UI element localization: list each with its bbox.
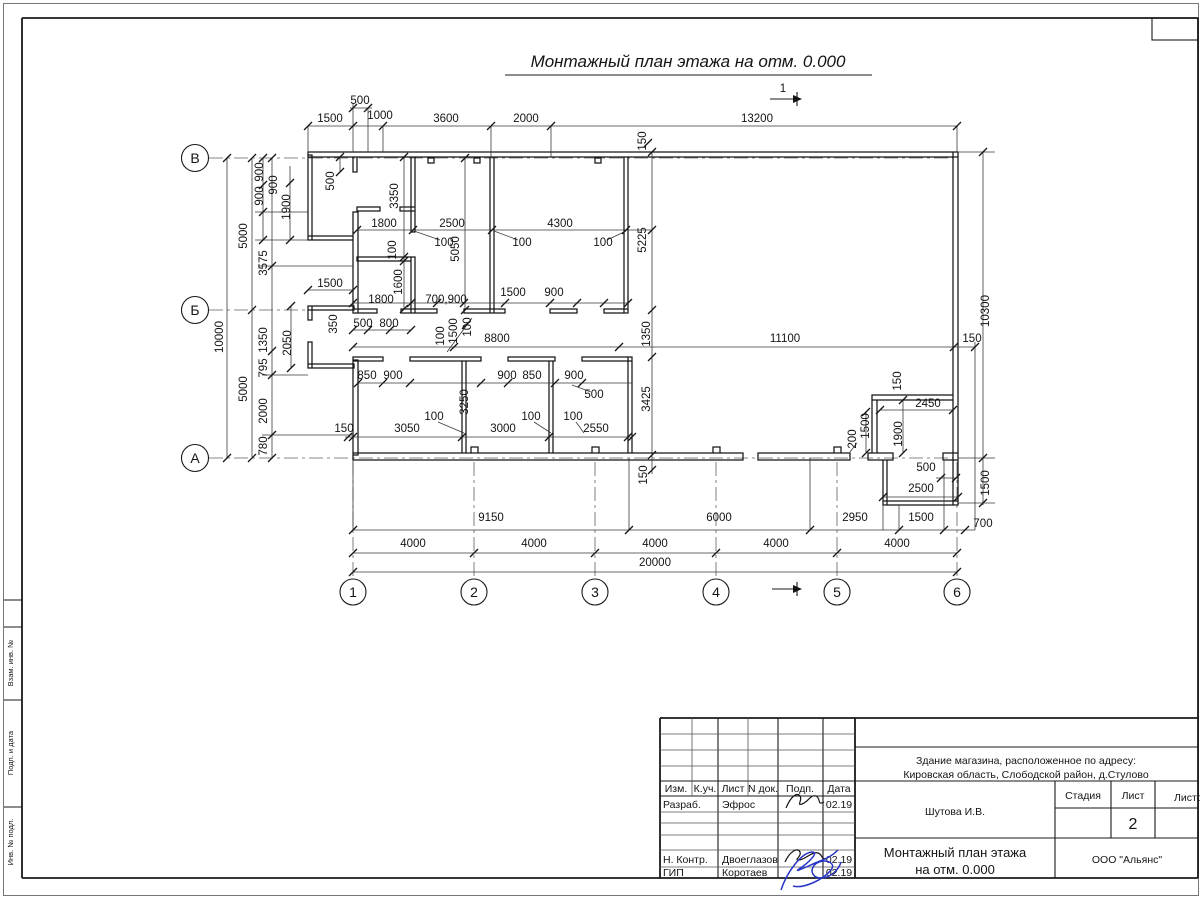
dim-label: 500 bbox=[350, 95, 369, 107]
title-block: Изм. К.уч. Лист N док. Подп. Дата Разраб… bbox=[660, 718, 1200, 890]
dim-label: 500 bbox=[584, 389, 603, 401]
format-box bbox=[1152, 18, 1198, 40]
dim-label: 900 bbox=[564, 370, 583, 382]
tb-doc-title-line1: Монтажный план этажа bbox=[884, 845, 1027, 860]
tb-col-header: N док. bbox=[748, 783, 778, 795]
tb-role: ГИП bbox=[663, 867, 684, 879]
dim-label: 11100 bbox=[770, 333, 800, 345]
tb-doc-title-line2: на отм. 0.000 bbox=[915, 862, 995, 877]
dim-label: 1800 bbox=[371, 218, 397, 230]
dim-label: 1500 bbox=[908, 512, 934, 524]
dim-label: 100 bbox=[512, 237, 531, 249]
dim-label: 3250 bbox=[459, 389, 471, 415]
dim-label: 500 bbox=[353, 318, 372, 330]
dim-label: 1350 bbox=[641, 321, 653, 347]
dimension-labels: 500 1500 1000 3600 2000 13200 150 900 90… bbox=[214, 95, 993, 569]
dim-label: 900 bbox=[544, 287, 563, 299]
dim-label: 5225 bbox=[637, 227, 649, 253]
dim-label: 100 bbox=[424, 411, 443, 423]
dim-label: 3350 bbox=[389, 183, 401, 209]
dim-label: 1500 bbox=[980, 470, 992, 496]
tb-date: 02.19 bbox=[826, 799, 852, 811]
dim-label: 1500 bbox=[317, 113, 343, 125]
dim-label: 3050 bbox=[394, 423, 420, 435]
section-mark-label: 1 bbox=[780, 83, 786, 95]
dim-label: 4000 bbox=[884, 538, 910, 550]
tb-name: Двоеглазов bbox=[722, 854, 778, 866]
dim-label: 2550 bbox=[583, 423, 609, 435]
dim-label: 900 bbox=[254, 186, 266, 205]
dim-label: 13200 bbox=[741, 113, 773, 125]
dim-label: 1500 bbox=[860, 413, 872, 439]
axis-col-label: 2 bbox=[470, 584, 478, 600]
dim-label: 100 bbox=[387, 240, 399, 259]
dim-label: 9150 bbox=[478, 512, 504, 524]
dim-label: 2050 bbox=[282, 330, 294, 356]
dim-label: 700 bbox=[973, 518, 992, 530]
tb-sheet-number: 2 bbox=[1129, 816, 1138, 833]
drawing-canvas: Взам. инв. № Подп. и дата Инв. № подл. М… bbox=[0, 0, 1200, 900]
dim-label: 3000 bbox=[490, 423, 516, 435]
axis-col-label: 6 bbox=[953, 584, 961, 600]
dim-label: 150 bbox=[638, 465, 650, 484]
tb-company: ООО "Альянс" bbox=[1092, 854, 1162, 866]
dim-label: 1800 bbox=[368, 294, 394, 306]
tb-date: 02.19 bbox=[826, 867, 852, 879]
dim-label: 100 bbox=[521, 411, 540, 423]
axis-col-label: 4 bbox=[712, 584, 720, 600]
dim-label: 850 bbox=[522, 370, 541, 382]
dim-label: 900 bbox=[268, 175, 280, 194]
dim-label: 20000 bbox=[639, 557, 671, 569]
tb-col-header: К.уч. bbox=[694, 783, 717, 795]
axis-row-label: А bbox=[190, 450, 200, 466]
dim-label: 4000 bbox=[400, 538, 426, 550]
dim-label: 5000 bbox=[238, 223, 250, 249]
dim-label: 850 bbox=[357, 370, 376, 382]
plan-title: Монтажный план этажа на отм. 0.000 bbox=[531, 52, 846, 71]
dim-label: 1600 bbox=[393, 269, 405, 295]
dim-label: 2000 bbox=[513, 113, 539, 125]
dim-label: 1500 bbox=[500, 287, 526, 299]
tb-role: Разраб. bbox=[663, 799, 701, 811]
dim-label: 900 bbox=[254, 162, 266, 181]
walls-outline bbox=[308, 152, 958, 505]
dim-label: 5050 bbox=[450, 236, 462, 262]
dim-label: 6000 bbox=[706, 512, 732, 524]
dim-label: 4000 bbox=[763, 538, 789, 550]
dim-label: 350 bbox=[328, 314, 340, 333]
side-stamp-cell: Взам. инв. № bbox=[6, 640, 15, 686]
dim-label: 200 bbox=[847, 429, 859, 448]
dim-label: 1000 bbox=[367, 110, 393, 122]
dim-label: 500 bbox=[916, 462, 935, 474]
dim-label: 800 bbox=[379, 318, 398, 330]
dim-label: 10300 bbox=[980, 295, 992, 327]
dim-label: 780 bbox=[258, 436, 270, 455]
tb-col-header: Изм. bbox=[665, 783, 688, 795]
dimension-lines bbox=[227, 104, 995, 572]
drawing-sheet: Взам. инв. № Подп. и дата Инв. № подл. М… bbox=[0, 0, 1200, 900]
tb-stage-label: Стадия bbox=[1065, 790, 1101, 802]
dim-label: 3425 bbox=[641, 386, 653, 412]
axis-col-label: 5 bbox=[833, 584, 841, 600]
dim-label: 100 bbox=[593, 237, 612, 249]
dim-label: 700,900 bbox=[425, 294, 467, 306]
dim-label: 150 bbox=[892, 371, 904, 390]
dim-label: 2500 bbox=[439, 218, 465, 230]
dim-label: 1900 bbox=[893, 421, 905, 447]
dim-label: 1500 bbox=[317, 278, 343, 290]
tb-col-header: Дата bbox=[827, 783, 850, 795]
dim-label: 2450 bbox=[915, 398, 941, 410]
tb-sheet-label: Лист bbox=[1122, 790, 1145, 802]
tb-object-line1: Здание магазина, расположенное по адресу… bbox=[916, 755, 1136, 767]
dim-label: 1900 bbox=[281, 194, 293, 220]
tb-object-line2: Кировская область, Слободской район, д.С… bbox=[903, 769, 1148, 781]
dim-label: 3600 bbox=[433, 113, 459, 125]
section-mark-bottom bbox=[772, 582, 802, 596]
dim-label: 8800 bbox=[484, 333, 510, 345]
axis-col-label: 3 bbox=[591, 584, 599, 600]
tb-name: Эфрос bbox=[722, 799, 755, 811]
axis-row-label: Б bbox=[190, 302, 199, 318]
dim-label: 500 bbox=[325, 171, 337, 190]
dim-label: 100 bbox=[563, 411, 582, 423]
dim-label: 795 bbox=[258, 358, 270, 377]
side-stamp-cell: Подп. и дата bbox=[6, 730, 15, 775]
dimension-ticks bbox=[223, 104, 987, 576]
dim-label: 10000 bbox=[214, 321, 226, 353]
tb-designer: Шутова И.В. bbox=[925, 806, 985, 818]
dim-label: 2500 bbox=[908, 483, 934, 495]
dim-label: 4000 bbox=[642, 538, 668, 550]
dim-label: 900 bbox=[383, 370, 402, 382]
dim-label: 5000 bbox=[238, 376, 250, 402]
axis-row-label: В bbox=[190, 150, 199, 166]
tb-name: Коротаев bbox=[722, 867, 768, 879]
dim-label: 100 bbox=[435, 326, 447, 345]
dim-label: 150 bbox=[962, 333, 981, 345]
dim-label: 2000 bbox=[258, 398, 270, 424]
inner-frame bbox=[22, 18, 1198, 878]
dim-label: 4300 bbox=[547, 218, 573, 230]
dim-label: 4000 bbox=[521, 538, 547, 550]
dim-label: 150 bbox=[637, 131, 649, 150]
axis-col-label: 1 bbox=[349, 584, 357, 600]
tb-sheets-label: Листов bbox=[1174, 792, 1200, 804]
dim-label: 100 bbox=[462, 317, 474, 336]
dim-label: 900 bbox=[497, 370, 516, 382]
dim-label: 1500 bbox=[448, 318, 460, 344]
dim-label: 2950 bbox=[842, 512, 868, 524]
dim-label: 150 bbox=[334, 423, 353, 435]
tb-col-header: Подп. bbox=[786, 783, 814, 795]
dim-label: 1350 bbox=[258, 327, 270, 353]
section-mark-top: 1 bbox=[770, 83, 802, 106]
side-stamp-cell: Инв. № подл. bbox=[6, 819, 15, 866]
dim-label: 3575 bbox=[258, 250, 270, 276]
tb-role: Н. Контр. bbox=[663, 854, 708, 866]
tb-col-header: Лист bbox=[722, 783, 745, 795]
